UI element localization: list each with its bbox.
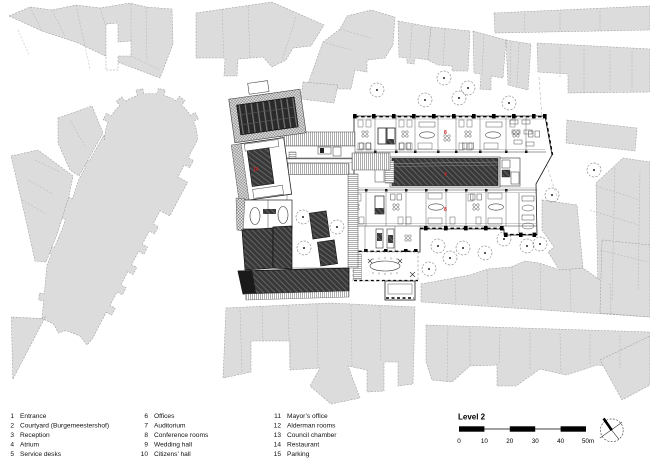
svg-text:Citizens’ hall: Citizens’ hall	[154, 451, 191, 458]
svg-text:10: 10	[141, 451, 149, 458]
svg-text:13: 13	[274, 432, 282, 439]
svg-text:2: 2	[10, 423, 14, 430]
svg-text:8: 8	[144, 432, 148, 439]
svg-text:Wedding hall: Wedding hall	[154, 442, 193, 449]
svg-text:50m: 50m	[582, 438, 594, 445]
svg-text:7: 7	[144, 423, 148, 430]
svg-text:14: 14	[253, 167, 259, 173]
svg-text:4: 4	[444, 172, 447, 178]
svg-text:0: 0	[457, 438, 461, 445]
svg-text:Auditorium: Auditorium	[154, 423, 186, 430]
svg-text:Service desks: Service desks	[20, 451, 62, 458]
svg-text:8: 8	[444, 207, 447, 213]
svg-text:40: 40	[557, 438, 565, 445]
svg-text:3: 3	[10, 432, 14, 439]
svg-text:30: 30	[532, 438, 540, 445]
svg-text:Courtyard (Burgemeestershof): Courtyard (Burgemeestershof)	[20, 423, 109, 430]
svg-text:Offices: Offices	[154, 413, 175, 420]
svg-text:6: 6	[144, 413, 148, 420]
svg-text:Mayor’s office: Mayor’s office	[287, 413, 328, 420]
svg-text:4: 4	[10, 442, 14, 449]
svg-text:Conference rooms: Conference rooms	[154, 432, 209, 439]
svg-text:12: 12	[274, 423, 282, 430]
svg-text:11: 11	[274, 413, 281, 420]
svg-text:Alderman rooms: Alderman rooms	[287, 423, 336, 430]
svg-text:14: 14	[274, 442, 282, 449]
svg-text:20: 20	[506, 438, 514, 445]
svg-text:Atrium: Atrium	[20, 442, 40, 449]
svg-text:Parking: Parking	[287, 451, 310, 458]
svg-text:Council chamber: Council chamber	[287, 432, 337, 439]
svg-text:8: 8	[444, 130, 447, 136]
svg-text:Restaurant: Restaurant	[287, 442, 319, 449]
svg-text:15: 15	[274, 451, 282, 458]
svg-text:9: 9	[144, 442, 148, 449]
svg-text:10: 10	[481, 438, 489, 445]
svg-text:Reception: Reception	[20, 432, 50, 439]
svg-text:1: 1	[10, 413, 14, 420]
svg-text:5: 5	[10, 451, 14, 458]
svg-text:Level 2: Level 2	[458, 413, 486, 422]
svg-text:Entrance: Entrance	[20, 413, 47, 420]
